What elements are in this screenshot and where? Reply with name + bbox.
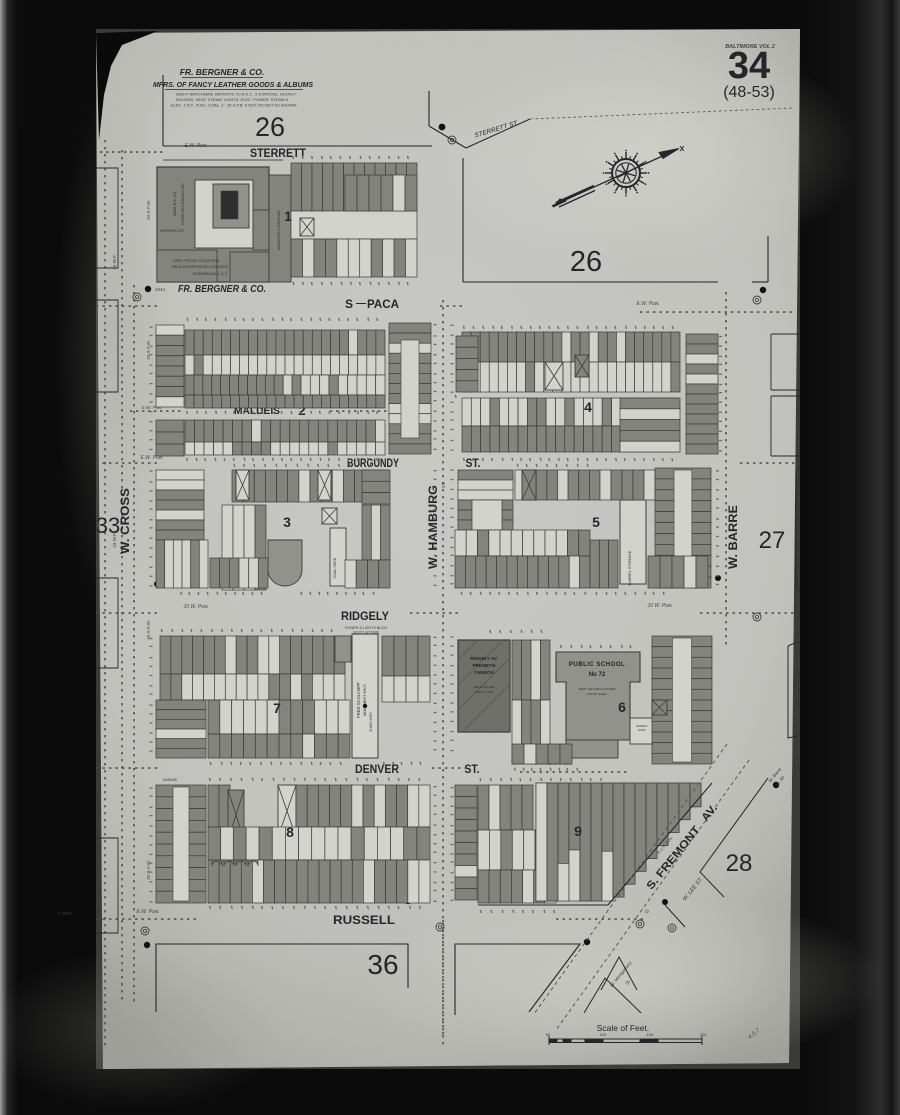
- svg-text:BRICK & REINFORCED CONCRETE: BRICK & REINFORCED CONCRETE: [172, 265, 230, 269]
- svg-text:MFRS. OF FANCY LEATHER GOODS &: MFRS. OF FANCY LEATHER GOODS & ALBUMS: [153, 82, 313, 89]
- svg-text:8: 8: [286, 824, 294, 840]
- svg-text:10 W. Pow.: 10 W. Pow.: [647, 603, 672, 609]
- svg-text:50: 50: [546, 1032, 551, 1037]
- svg-text:MOUNTING & FINISHING: MOUNTING & FINISHING: [277, 210, 281, 250]
- svg-text:4: 4: [584, 399, 592, 415]
- svg-text:36: 36: [367, 949, 398, 980]
- svg-text:PACA: PACA: [367, 297, 399, 311]
- svg-text:No 72: No 72: [589, 672, 606, 678]
- svg-text:FIRE PROOF CONSTR'N: FIRE PROOF CONSTR'N: [173, 258, 219, 263]
- svg-text:MONUMENT W'K'S: MONUMENT W'K'S: [363, 684, 367, 716]
- svg-text:PAPER BOX MAKING 2ND: PAPER BOX MAKING 2ND: [181, 183, 185, 225]
- svg-text:30 R.P.W.: 30 R.P.W.: [146, 200, 151, 220]
- svg-text:LIGHTS: GAS: LIGHTS: GAS: [475, 690, 494, 694]
- svg-text:(48-53): (48-53): [723, 84, 775, 101]
- svg-text:C.W.P.: C.W.P.: [58, 911, 72, 916]
- svg-text:RIDGELY AV.: RIDGELY AV.: [470, 656, 497, 661]
- svg-text:NIGHT WATCHMAN, REPORTS TO A.D: NIGHT WATCHMAN, REPORTS TO A.D.T., 3 STA…: [176, 92, 297, 97]
- svg-text:9: 9: [574, 823, 582, 839]
- svg-text:BARREL STORAGE: BARREL STORAGE: [628, 550, 632, 585]
- svg-text:7: 7: [273, 700, 281, 716]
- svg-text:W. CROSS: W. CROSS: [120, 488, 132, 554]
- svg-text:POWER & LIGHTS BLD'G: POWER & LIGHTS BLD'G: [345, 626, 388, 630]
- svg-text:1044: 1044: [155, 287, 166, 292]
- svg-text:26: 26: [255, 112, 285, 142]
- svg-text:E.W. Pow.: E.W. Pow.: [185, 143, 208, 149]
- svg-text:DENVER: DENVER: [355, 762, 399, 776]
- svg-text:30 R.P.W.: 30 R.P.W.: [146, 620, 151, 640]
- svg-text:FR. BERGNER & CO.: FR. BERGNER & CO.: [180, 67, 265, 77]
- svg-text:TABLE R'M. 1ST: TABLE R'M. 1ST: [173, 191, 177, 216]
- svg-text:SCH'L: SCH'L: [638, 728, 646, 732]
- svg-text:33 W.P.: 33 W.P.: [112, 532, 117, 547]
- svg-text:27: 27: [759, 527, 786, 554]
- svg-text:RUSSELL: RUSSELL: [333, 913, 395, 927]
- svg-text:ELEC. 1.5 P., FUEL: COAL. 2 -: ELEC. 1.5 P., FUEL: COAL. 2 - 25 H.P.B. …: [171, 103, 297, 108]
- svg-text:150: 150: [647, 1032, 654, 1037]
- svg-text:FRED SCHLAMPP: FRED SCHLAMPP: [356, 682, 361, 718]
- svg-text:ST.: ST.: [465, 762, 480, 776]
- svg-text:BURGUNDY: BURGUNDY: [347, 456, 399, 470]
- svg-text:S: S: [345, 297, 353, 311]
- svg-text:W. BARRE: W. BARRE: [728, 505, 740, 569]
- svg-text:34: 34: [728, 45, 770, 87]
- svg-text:GARAGE: GARAGE: [163, 778, 178, 782]
- svg-text:ASSEMBLING 1, 2, 3: ASSEMBLING 1, 2, 3: [192, 272, 227, 276]
- svg-text:ST.: ST.: [441, 482, 446, 489]
- svg-text:200: 200: [700, 1032, 707, 1037]
- svg-text:STERRETT: STERRETT: [250, 146, 307, 160]
- svg-text:E.W. Pow.: E.W. Pow.: [137, 909, 160, 915]
- svg-text:PRESBY'N: PRESBY'N: [473, 663, 496, 668]
- svg-text:SHIPPING 1ST: SHIPPING 1ST: [160, 229, 186, 233]
- svg-text:SHOW SHED: SHOW SHED: [369, 711, 373, 731]
- svg-text:E.W. Pow.: E.W. Pow.: [637, 301, 660, 307]
- svg-text:CHURCH: CHURCH: [474, 670, 494, 675]
- svg-text:LIGHTS: ELEC.: LIGHTS: ELEC.: [586, 692, 607, 696]
- svg-text:RIDGELY: RIDGELY: [341, 609, 389, 623]
- svg-text:100: 100: [600, 1032, 607, 1037]
- svg-text:W. HAMBURG: W. HAMBURG: [428, 485, 440, 569]
- svg-text:HEAT: HOT AIR: HEAT: HOT AIR: [473, 685, 495, 689]
- svg-text:5: 5: [592, 514, 600, 530]
- svg-text:HEAT: HOT AIR & STOVES: HEAT: HOT AIR & STOVES: [579, 687, 616, 691]
- svg-text:26: 26: [570, 246, 602, 278]
- svg-text:1: 1: [284, 208, 292, 224]
- svg-text:28: 28: [726, 850, 753, 877]
- svg-text:COAL SHED: COAL SHED: [333, 557, 337, 578]
- svg-text:6: 6: [618, 699, 626, 715]
- svg-text:26 W.P.: 26 W.P.: [112, 254, 117, 269]
- svg-text:⊙: ⊙: [645, 909, 649, 915]
- svg-text:PUBLIC SCHOOL: PUBLIC SCHOOL: [569, 662, 625, 668]
- svg-text:3: 3: [283, 514, 291, 530]
- svg-text:FR. BERGNER & CO.: FR. BERGNER & CO.: [178, 284, 266, 295]
- svg-text:30 R.P.W.: 30 R.P.W.: [146, 340, 151, 360]
- svg-text:10 W. Pow.: 10 W. Pow.: [183, 604, 208, 610]
- svg-text:ROUNDS. HEAT: STEAM. LIGHTS: E: ROUNDS. HEAT: STEAM. LIGHTS: ELEC. POWER…: [176, 97, 288, 102]
